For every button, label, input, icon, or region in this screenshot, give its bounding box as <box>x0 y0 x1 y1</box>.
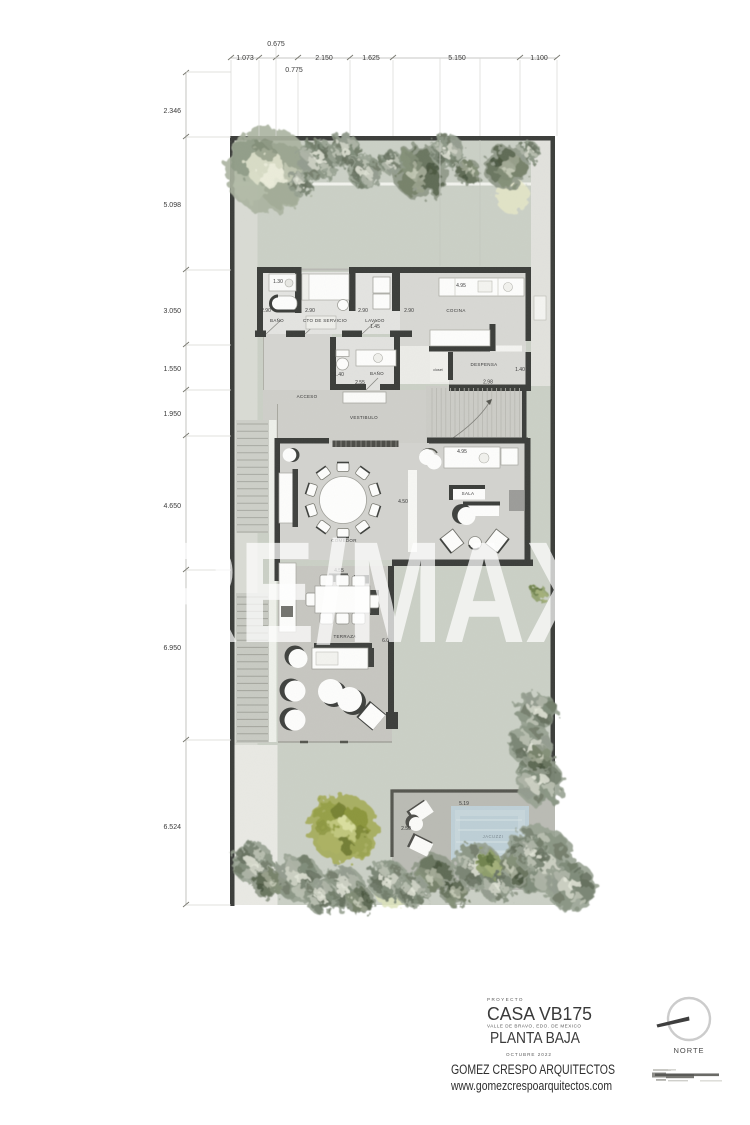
svg-text:1.40: 1.40 <box>334 372 344 378</box>
svg-text:RE/MAX: RE/MAX <box>156 512 602 673</box>
svg-text:4.50: 4.50 <box>398 499 408 505</box>
svg-text:LAVADO: LAVADO <box>365 318 385 323</box>
svg-text:DESPENSA: DESPENSA <box>471 362 498 367</box>
svg-text:2.55: 2.55 <box>355 380 365 386</box>
svg-text:COCINA: COCINA <box>446 308 465 313</box>
svg-text:1.950: 1.950 <box>163 411 181 418</box>
svg-text:6.524: 6.524 <box>163 824 181 831</box>
svg-text:NORTE: NORTE <box>673 1046 704 1055</box>
svg-text:VALLE DE BRAVO, EDO. DE MEXICO: VALLE DE BRAVO, EDO. DE MEXICO <box>487 1024 581 1029</box>
svg-text:4.650: 4.650 <box>163 503 181 510</box>
svg-text:GOMEZ CRESPO ARQUITECTOS: GOMEZ CRESPO ARQUITECTOS <box>451 1062 615 1077</box>
svg-text:2.90: 2.90 <box>305 308 315 314</box>
svg-text:VESTIBULO: VESTIBULO <box>350 415 378 420</box>
svg-text:2.90: 2.90 <box>358 308 368 314</box>
svg-text:BAÑO: BAÑO <box>370 370 384 376</box>
svg-text:OCTUBRE 2022: OCTUBRE 2022 <box>506 1052 552 1057</box>
svg-text:1.550: 1.550 <box>163 366 181 373</box>
svg-text:PLANTA BAJA: PLANTA BAJA <box>490 1030 581 1047</box>
svg-text:1.625: 1.625 <box>362 55 380 62</box>
svg-text:CASA VB175: CASA VB175 <box>487 1003 592 1024</box>
svg-text:2.90: 2.90 <box>404 308 414 314</box>
svg-text:ACCESO: ACCESO <box>297 394 318 399</box>
svg-text:1.45: 1.45 <box>370 324 380 330</box>
svg-text:1.100: 1.100 <box>530 55 548 62</box>
svg-text:1.073: 1.073 <box>236 55 254 62</box>
svg-text:0.675: 0.675 <box>267 41 285 48</box>
svg-text:3.050: 3.050 <box>163 308 181 315</box>
svg-text:closet: closet <box>433 368 442 372</box>
svg-text:0.775: 0.775 <box>285 67 303 74</box>
svg-text:JACUZZI: JACUZZI <box>483 834 504 839</box>
svg-text:5.150: 5.150 <box>448 55 466 62</box>
svg-text:4.95: 4.95 <box>456 283 466 289</box>
svg-text:CTO DE SERVICIO: CTO DE SERVICIO <box>303 318 347 323</box>
svg-text:PROYECTO: PROYECTO <box>487 997 524 1002</box>
svg-text:2.90: 2.90 <box>261 308 271 314</box>
svg-text:2.346: 2.346 <box>163 108 181 115</box>
svg-text:2.50: 2.50 <box>401 826 411 832</box>
svg-text:2.98: 2.98 <box>483 380 493 386</box>
svg-text:5.098: 5.098 <box>163 202 181 209</box>
svg-text:1.30: 1.30 <box>273 279 283 285</box>
svg-text:5.19: 5.19 <box>459 801 469 807</box>
svg-text:BAÑO: BAÑO <box>270 317 284 323</box>
svg-text:4.95: 4.95 <box>457 449 467 455</box>
svg-text:2.150: 2.150 <box>315 55 333 62</box>
svg-text:www.gomezcrespoarquitectos.com: www.gomezcrespoarquitectos.com <box>450 1079 612 1093</box>
svg-text:1.40: 1.40 <box>515 367 525 373</box>
svg-text:SALA: SALA <box>462 491 475 496</box>
